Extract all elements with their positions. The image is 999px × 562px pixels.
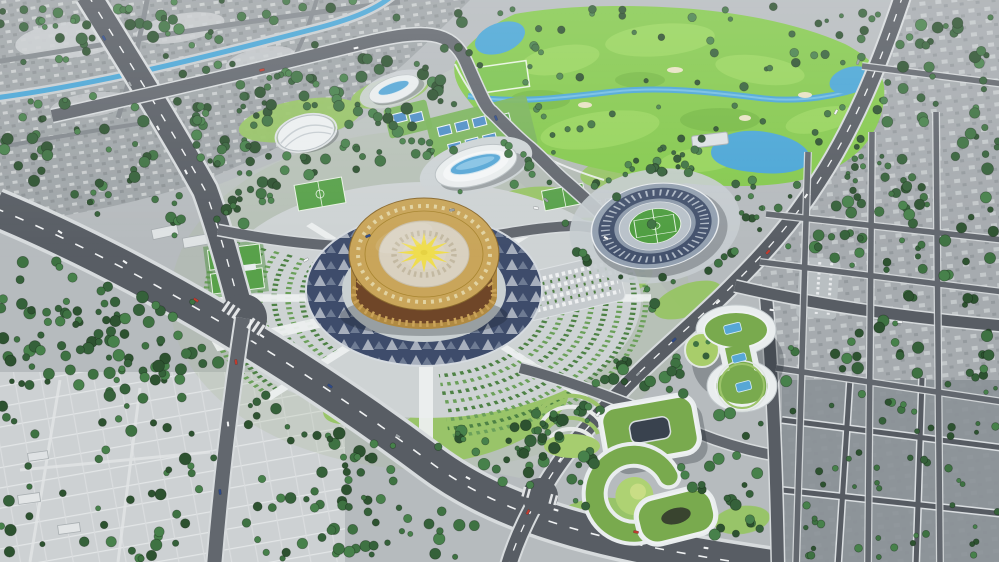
masterplan-svg xyxy=(0,0,999,562)
light-overlay xyxy=(0,0,999,260)
masterplan-render xyxy=(0,0,999,562)
